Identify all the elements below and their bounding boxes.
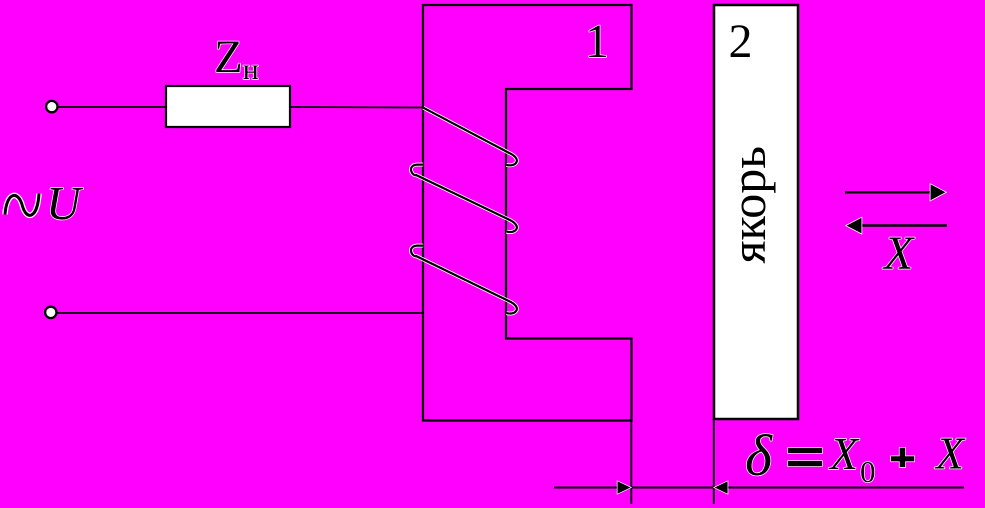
svg-text:якорь: якорь xyxy=(720,146,776,264)
svg-text:U: U xyxy=(46,178,84,231)
svg-text:δ: δ xyxy=(745,423,773,488)
svg-text:0: 0 xyxy=(860,454,876,489)
svg-text:2: 2 xyxy=(729,15,753,68)
svg-text:X: X xyxy=(882,227,915,280)
svg-text:1: 1 xyxy=(585,15,609,68)
svg-text:X: X xyxy=(934,428,966,479)
svg-text:X: X xyxy=(828,428,860,479)
